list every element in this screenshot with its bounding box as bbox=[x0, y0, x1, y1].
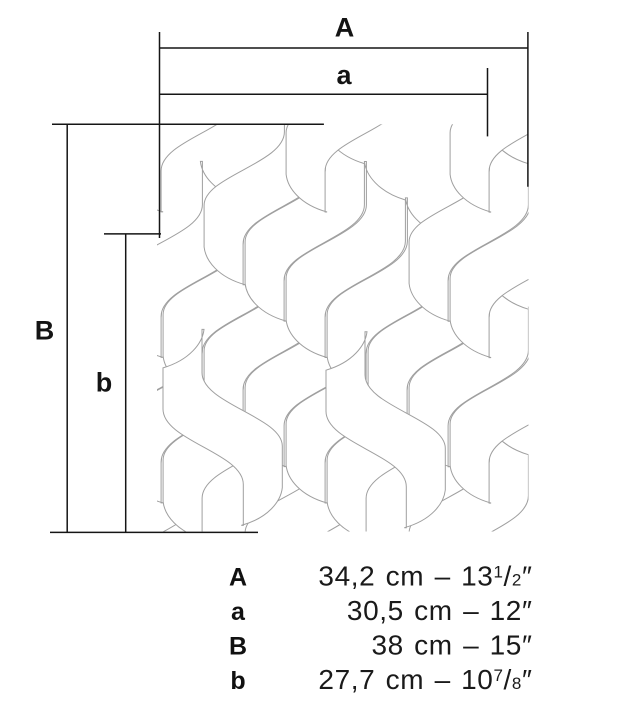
svg-text:A: A bbox=[335, 13, 355, 43]
svg-text:a: a bbox=[231, 598, 246, 626]
svg-text:B: B bbox=[35, 316, 55, 346]
svg-text:b: b bbox=[96, 368, 113, 398]
svg-text:30,5 cm – 12″: 30,5 cm – 12″ bbox=[347, 595, 533, 626]
svg-text:A: A bbox=[229, 564, 247, 592]
svg-text:b: b bbox=[230, 667, 245, 695]
svg-text:B: B bbox=[229, 633, 247, 661]
svg-text:a: a bbox=[336, 60, 352, 90]
svg-text:38 cm – 15″: 38 cm – 15″ bbox=[371, 630, 532, 661]
